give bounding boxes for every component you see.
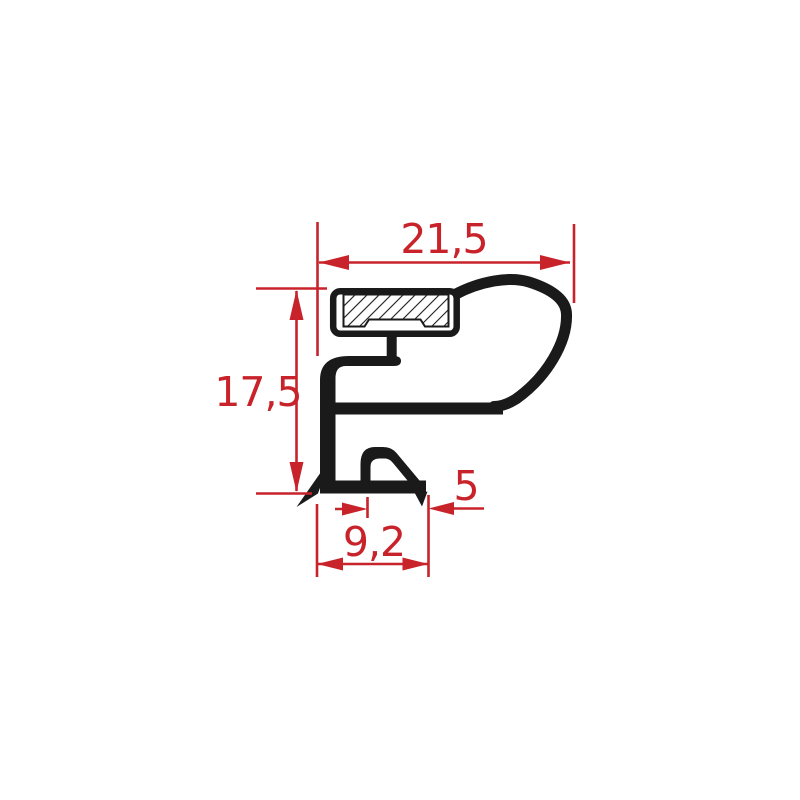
dimension-label-left-height: 17,5 [214, 368, 301, 416]
dimension-left-height: 17,5 [214, 289, 327, 494]
arrowhead-left [319, 255, 349, 270]
arrowhead-right [403, 558, 429, 571]
sealing-bulb-outline [454, 280, 567, 407]
profile-barb-spike [297, 472, 322, 507]
arrowhead-right [540, 255, 570, 270]
arrowhead-down [290, 462, 304, 492]
gasket-profile [297, 280, 567, 507]
gasket-profile-drawing: 21,5 17,5 5 [0, 0, 800, 800]
pocket-stem [387, 334, 397, 357]
arrowhead-left [342, 503, 368, 516]
arrowhead-right [429, 502, 455, 515]
dimension-label-top-width: 21,5 [400, 215, 487, 263]
arrowhead-up [290, 290, 304, 320]
dimension-label-bottom-width: 9,2 [343, 518, 405, 566]
dimension-label-bottom-offset: 5 [453, 462, 478, 510]
profile-foot-tip [415, 492, 428, 507]
dimension-bottom-width: 9,2 [317, 504, 429, 577]
technical-drawing-canvas: 21,5 17,5 5 [0, 0, 800, 800]
arrowhead-left [317, 558, 343, 571]
